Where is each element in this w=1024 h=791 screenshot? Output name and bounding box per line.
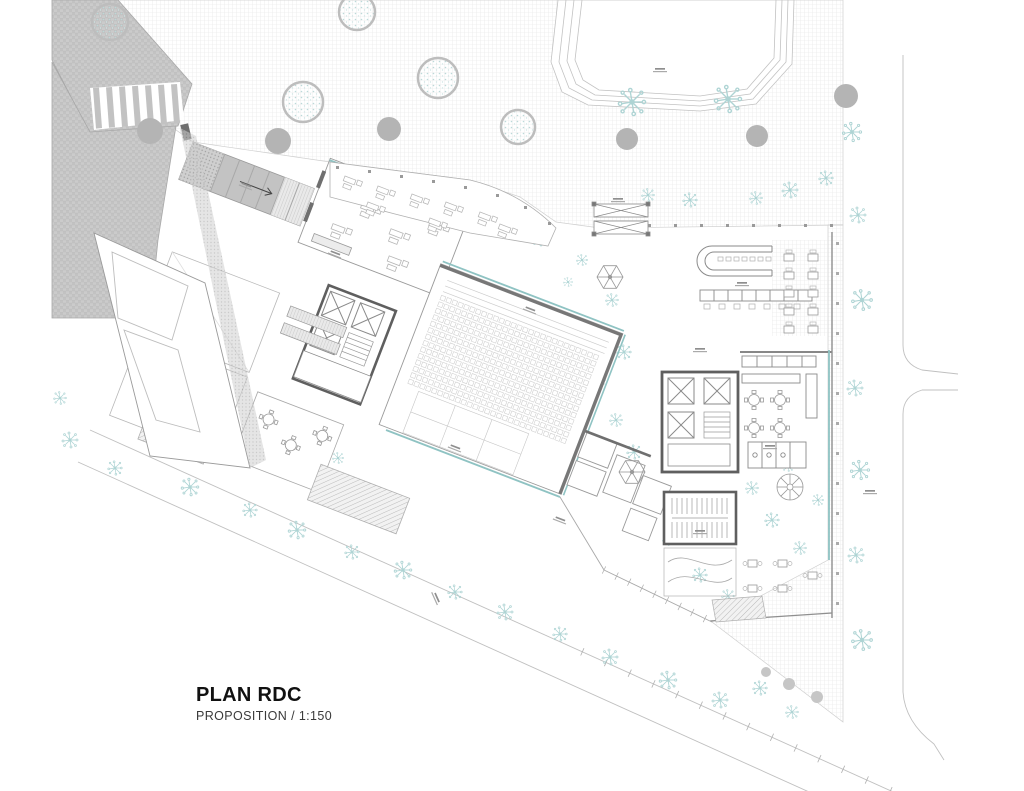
south-canopy [712,596,766,622]
stair-block-south [664,492,736,544]
garden-waves [664,548,736,596]
column-grid-ticks [602,566,706,622]
wc-block [748,442,806,468]
sheet-subtitle: PROPOSITION / 1:150 [196,709,332,723]
spiral-stair [777,474,803,500]
floor-plan-drawing [0,0,1024,791]
core-block-right [662,372,738,472]
core-block-left [293,285,396,404]
sheet-title: PLAN RDC [196,684,332,707]
canopy-hatch [307,464,409,534]
stepped-plaza [551,0,794,111]
floor-plan-sheet: PLAN RDC PROPOSITION / 1:150 [0,0,1024,791]
restaurant-terrace-paving [772,240,828,336]
title-block: PLAN RDC PROPOSITION / 1:150 [196,684,332,723]
bar-counter [697,246,772,276]
